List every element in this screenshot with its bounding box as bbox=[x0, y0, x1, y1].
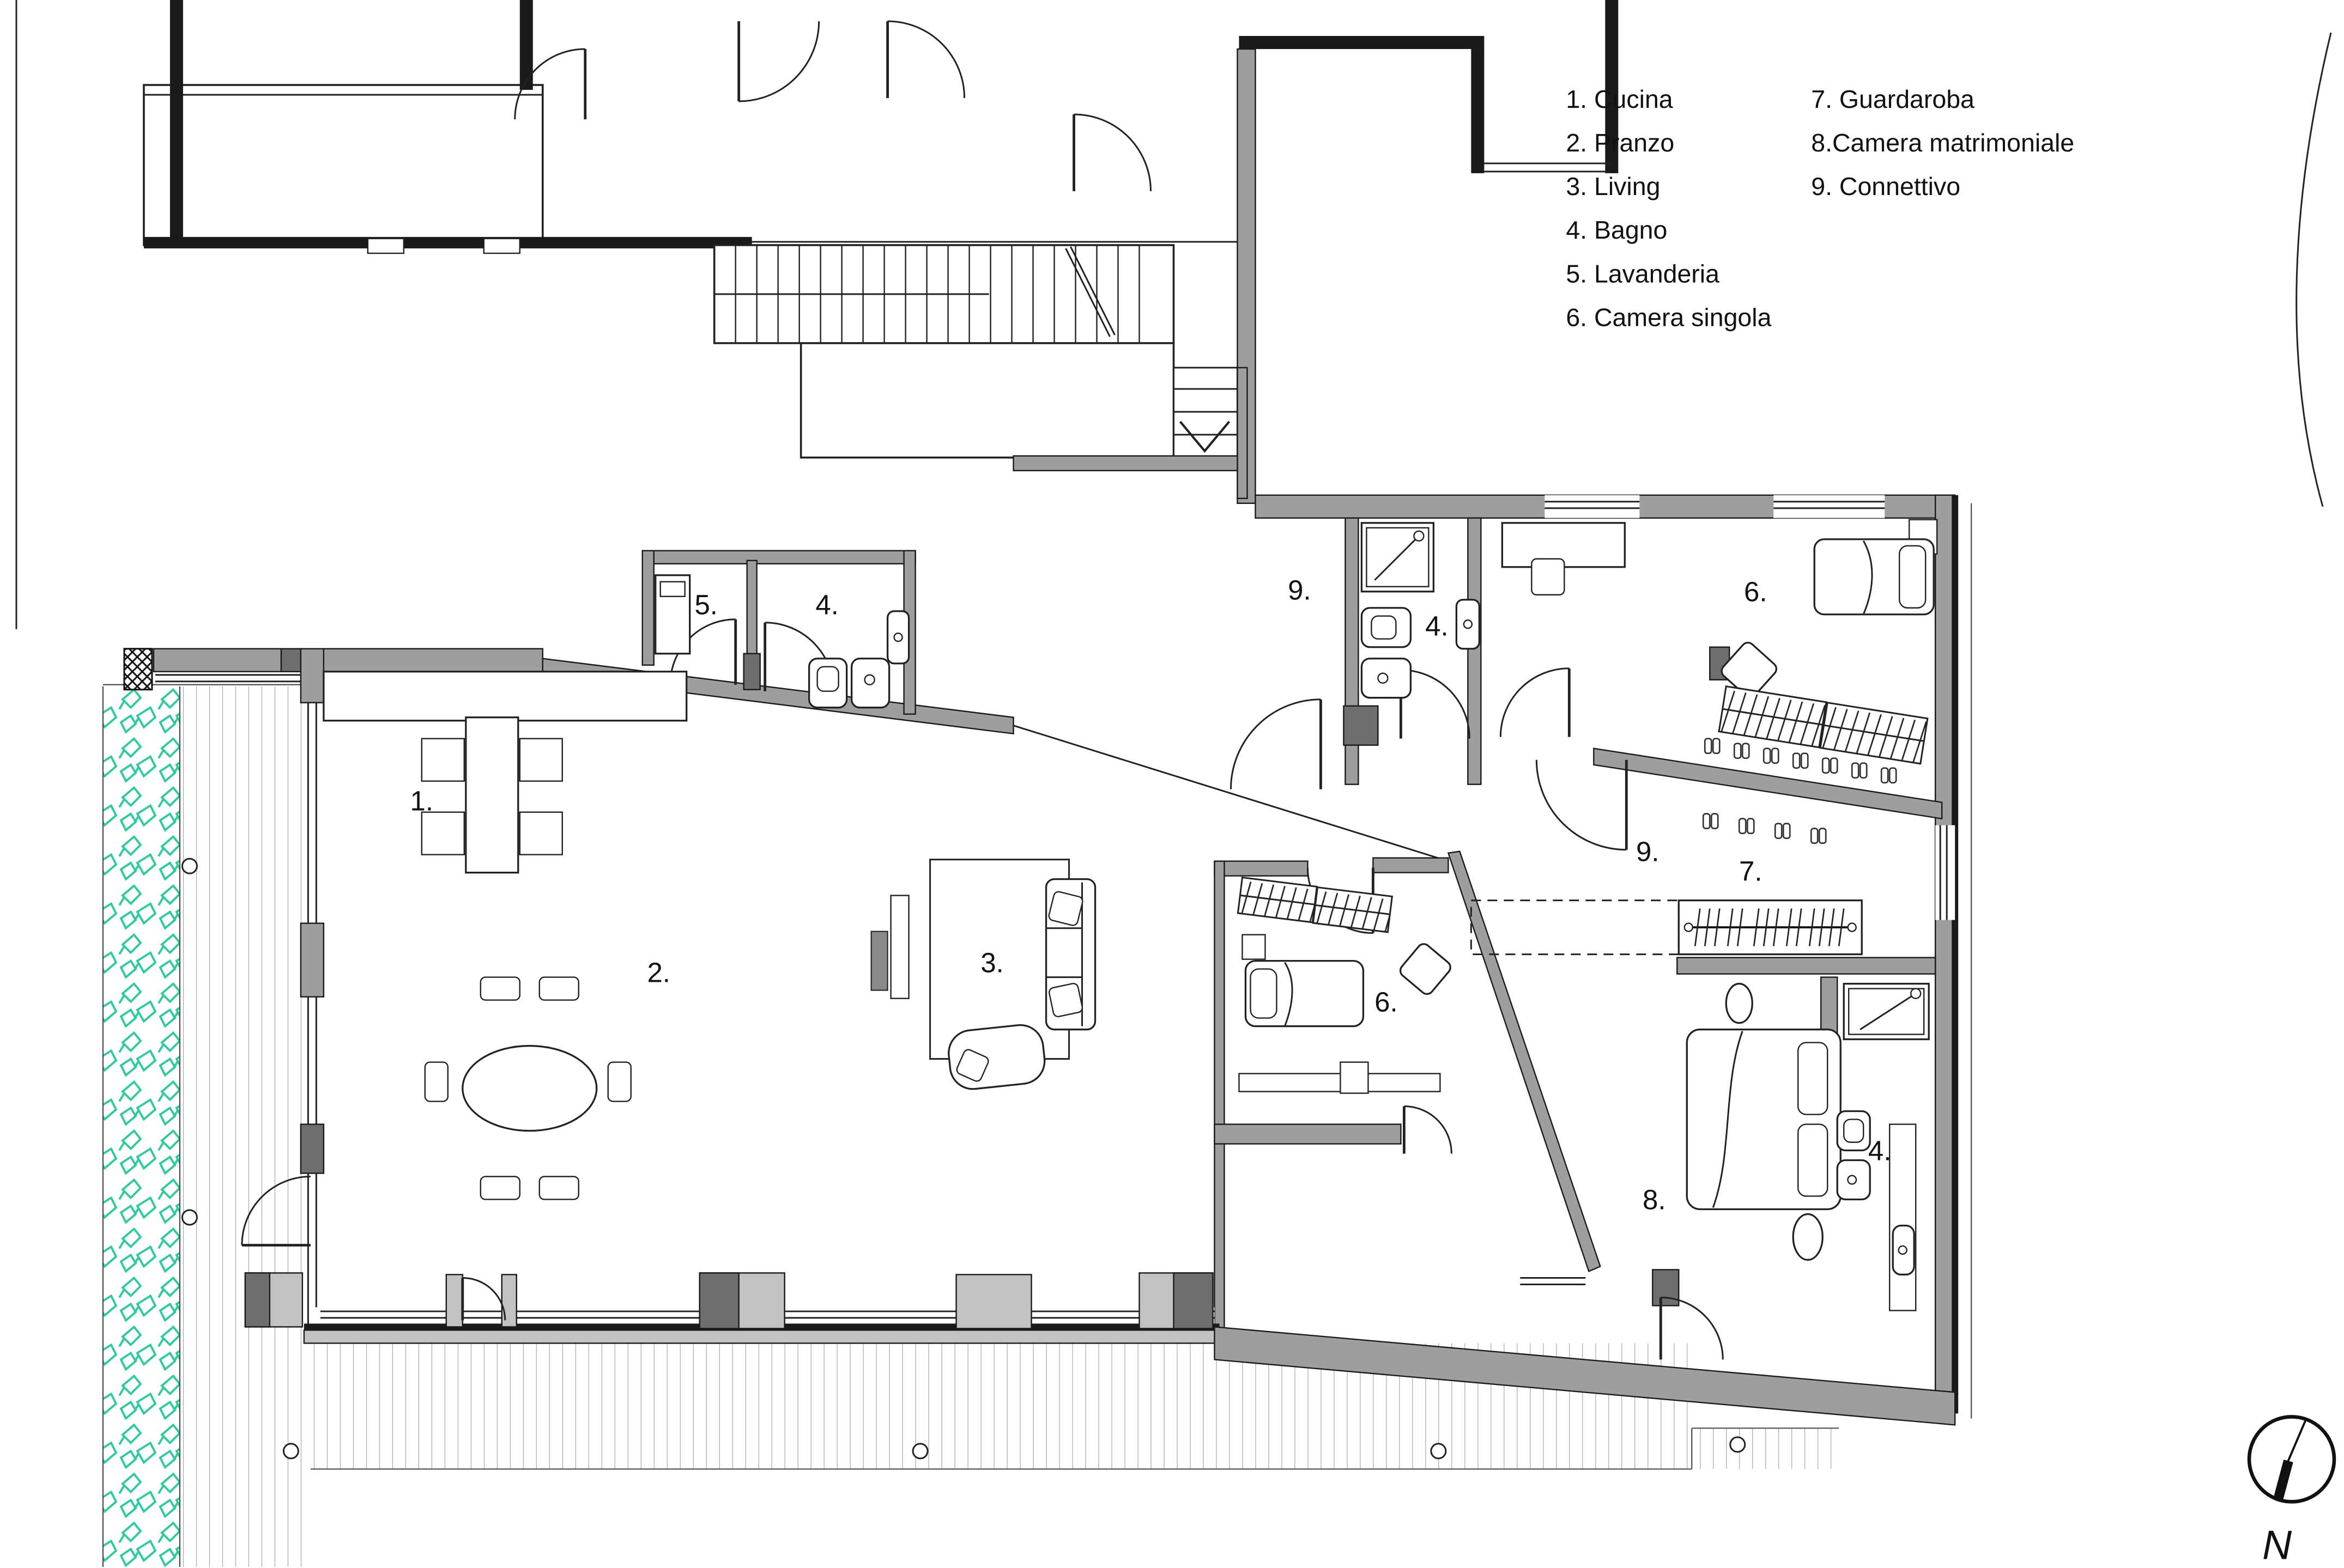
pillow bbox=[1250, 969, 1276, 1018]
desk-chair bbox=[1340, 1062, 1368, 1093]
room-label-connettivo-top: 9. bbox=[1288, 575, 1311, 606]
bedroom-double bbox=[1687, 984, 1840, 1260]
deck-left bbox=[180, 686, 311, 1567]
legend-item-living: 3. Living bbox=[1566, 172, 1660, 200]
floor-cushion bbox=[1398, 941, 1453, 996]
south-wall-columns bbox=[245, 1269, 1679, 1328]
sofa-cushion bbox=[1048, 891, 1083, 926]
planting-strip bbox=[103, 686, 180, 1567]
legend-item-bagno: 4. Bagno bbox=[1566, 216, 1667, 244]
room-label-camera-singola-bottom: 6. bbox=[1374, 987, 1398, 1018]
tv-cabinet bbox=[891, 896, 909, 999]
clothes-rack bbox=[1719, 686, 1928, 764]
legend-item-camera-singola: 6. Camera singola bbox=[1566, 303, 1771, 331]
room-label-living: 3. bbox=[980, 947, 1004, 979]
desk-chair bbox=[1531, 559, 1564, 595]
legend: 1. Cucina 2. Pranzo 3. Living 4. Bagno 5… bbox=[1566, 85, 2074, 331]
room-label-camera-matrimoniale: 8. bbox=[1643, 1184, 1666, 1215]
nightstand bbox=[1242, 935, 1265, 959]
site-boundary-curve bbox=[2297, 33, 2331, 507]
floor-plan-svg: 1. 2. 3. 5. 4. 9. 4. 6. 9. 7. 6. 8. 4. 1… bbox=[0, 0, 2344, 1567]
bathroom-top-right bbox=[1361, 523, 1479, 698]
stair-landing bbox=[801, 343, 1174, 458]
room-label-camera-singola-top: 6. bbox=[1744, 576, 1767, 607]
wardrobe bbox=[1471, 814, 1862, 955]
kitchen-counter bbox=[324, 672, 687, 721]
bedroom-single-bottom bbox=[1238, 878, 1453, 1093]
room-label-bagno-top: 4. bbox=[815, 589, 839, 621]
upper-floor-fragment bbox=[16, 0, 2331, 629]
room-label-lavanderia: 5. bbox=[694, 589, 718, 621]
compass-needle bbox=[2273, 1460, 2293, 1502]
compass-circle bbox=[2249, 1417, 2334, 1502]
closet-dashed-zone bbox=[1471, 901, 1679, 955]
desk bbox=[1239, 1074, 1440, 1092]
legend-item-connettivo: 9. Connettivo bbox=[1811, 172, 1960, 200]
room-label-cucina: 1. bbox=[410, 786, 434, 817]
legend-item-pranzo: 2. Pranzo bbox=[1566, 129, 1674, 157]
window-marker bbox=[368, 239, 404, 253]
bathroom-top-left bbox=[809, 611, 909, 708]
round-nightstand bbox=[1726, 984, 1752, 1023]
terrace bbox=[103, 649, 1839, 1567]
compass-north-label: N bbox=[2262, 1522, 2292, 1567]
room-label-bagno-bottom: 4. bbox=[1868, 1135, 1892, 1166]
room-label-connettivo-mid: 9. bbox=[1636, 836, 1659, 867]
upper-balcony bbox=[144, 85, 543, 245]
legend-item-lavanderia: 5. Lavanderia bbox=[1566, 259, 1719, 288]
deck-bottom-right bbox=[1692, 1428, 1839, 1469]
pillow bbox=[1798, 1043, 1827, 1115]
legend-item-guardaroba: 7. Guardaroba bbox=[1811, 85, 1974, 113]
legend-item-camera-matrimoniale: 8.Camera matrimoniale bbox=[1811, 129, 2074, 157]
hatched-column bbox=[124, 649, 152, 690]
floor-plan-page: 1. 2. 3. 5. 4. 9. 4. 6. 9. 7. 6. 8. 4. 1… bbox=[0, 0, 2344, 1567]
staircase bbox=[714, 245, 1247, 499]
room-label-pranzo: 2. bbox=[647, 957, 670, 988]
dining-table bbox=[463, 1046, 597, 1131]
pillow bbox=[1798, 1125, 1827, 1196]
kitchen-table bbox=[466, 718, 518, 873]
compass-needle-thin bbox=[2287, 1418, 2306, 1464]
clothes-rack bbox=[1238, 878, 1392, 932]
compass: N bbox=[2249, 1417, 2334, 1567]
legend-item-cucina: 1. Cucina bbox=[1566, 85, 1673, 113]
shoe-row-south bbox=[1703, 814, 1826, 843]
dining-area bbox=[425, 977, 631, 1200]
sofa-cushion bbox=[1049, 983, 1083, 1018]
room-label-guardaroba: 7. bbox=[1739, 856, 1762, 887]
tv-cabinet-block bbox=[871, 932, 888, 990]
upper-door-swings bbox=[515, 21, 1151, 191]
window-marker bbox=[484, 239, 520, 253]
laundry bbox=[656, 575, 690, 654]
round-nightstand bbox=[1793, 1214, 1822, 1260]
room-label-bagno-mid: 4. bbox=[1425, 611, 1449, 642]
pillow bbox=[1899, 546, 1925, 608]
kitchen bbox=[324, 672, 687, 873]
vanity-counter bbox=[1889, 1125, 1916, 1311]
